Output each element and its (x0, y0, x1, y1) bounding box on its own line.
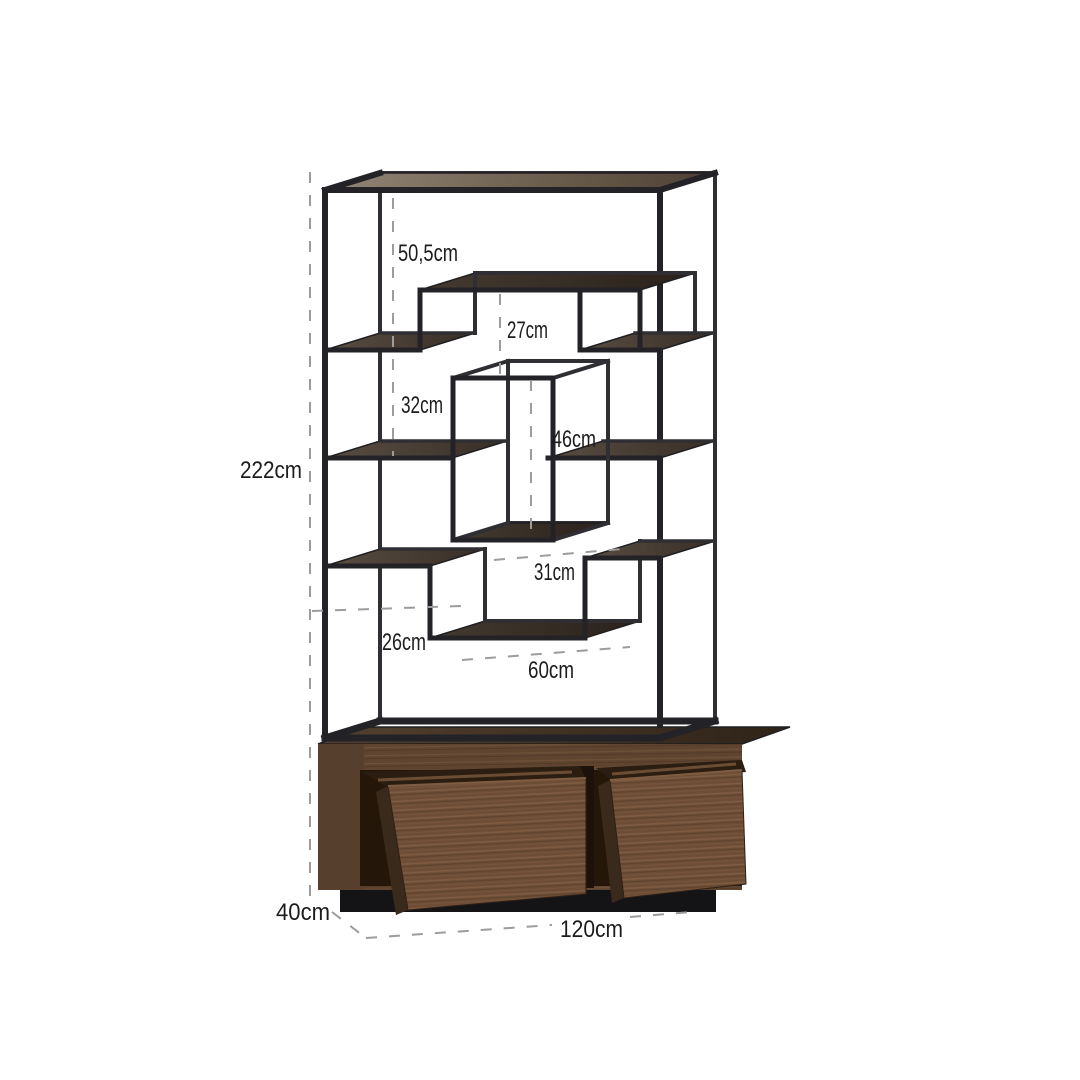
left-drawer-front (388, 778, 586, 910)
dim-label-total-height: 222cm (240, 457, 302, 484)
etagere-diagram-svg: 222cm 50,5cm 27cm 32cm 46cm 31cm 26cm 60… (0, 0, 1080, 1080)
dim-label-bridge-clearance: 27cm (507, 317, 548, 344)
dim-label-width: 120cm (560, 916, 623, 943)
dim-line-width (366, 912, 692, 938)
level2-left-shelf (325, 333, 475, 350)
level2-right-shelf (580, 333, 715, 350)
cabinet-left-stile (318, 744, 364, 890)
dim-label-depth: 40cm (276, 899, 330, 926)
right-drawer (596, 760, 746, 903)
dim-line-depth (332, 912, 366, 938)
level3-left-shelf (325, 441, 507, 458)
level4-left-shelf (325, 549, 485, 566)
dim-label-mid-gap: 31cm (534, 559, 575, 586)
left-drawer (362, 766, 586, 915)
level4-right-shelf (585, 541, 715, 558)
dim-label-left-shelf-gap: 32cm (401, 392, 443, 419)
dim-label-bottom-shelf-width: 60cm (528, 657, 574, 684)
product-dimension-diagram: 222cm 50,5cm 27cm 32cm 46cm 31cm 26cm 60… (0, 0, 1080, 1080)
dim-line-step-gap (312, 606, 462, 611)
dim-label-top-clearance: 50,5cm (398, 240, 458, 267)
dim-label-cube-height: 46cm (552, 426, 596, 453)
right-drawer-front (610, 770, 746, 898)
dim-label-step-gap: 26cm (382, 629, 426, 656)
